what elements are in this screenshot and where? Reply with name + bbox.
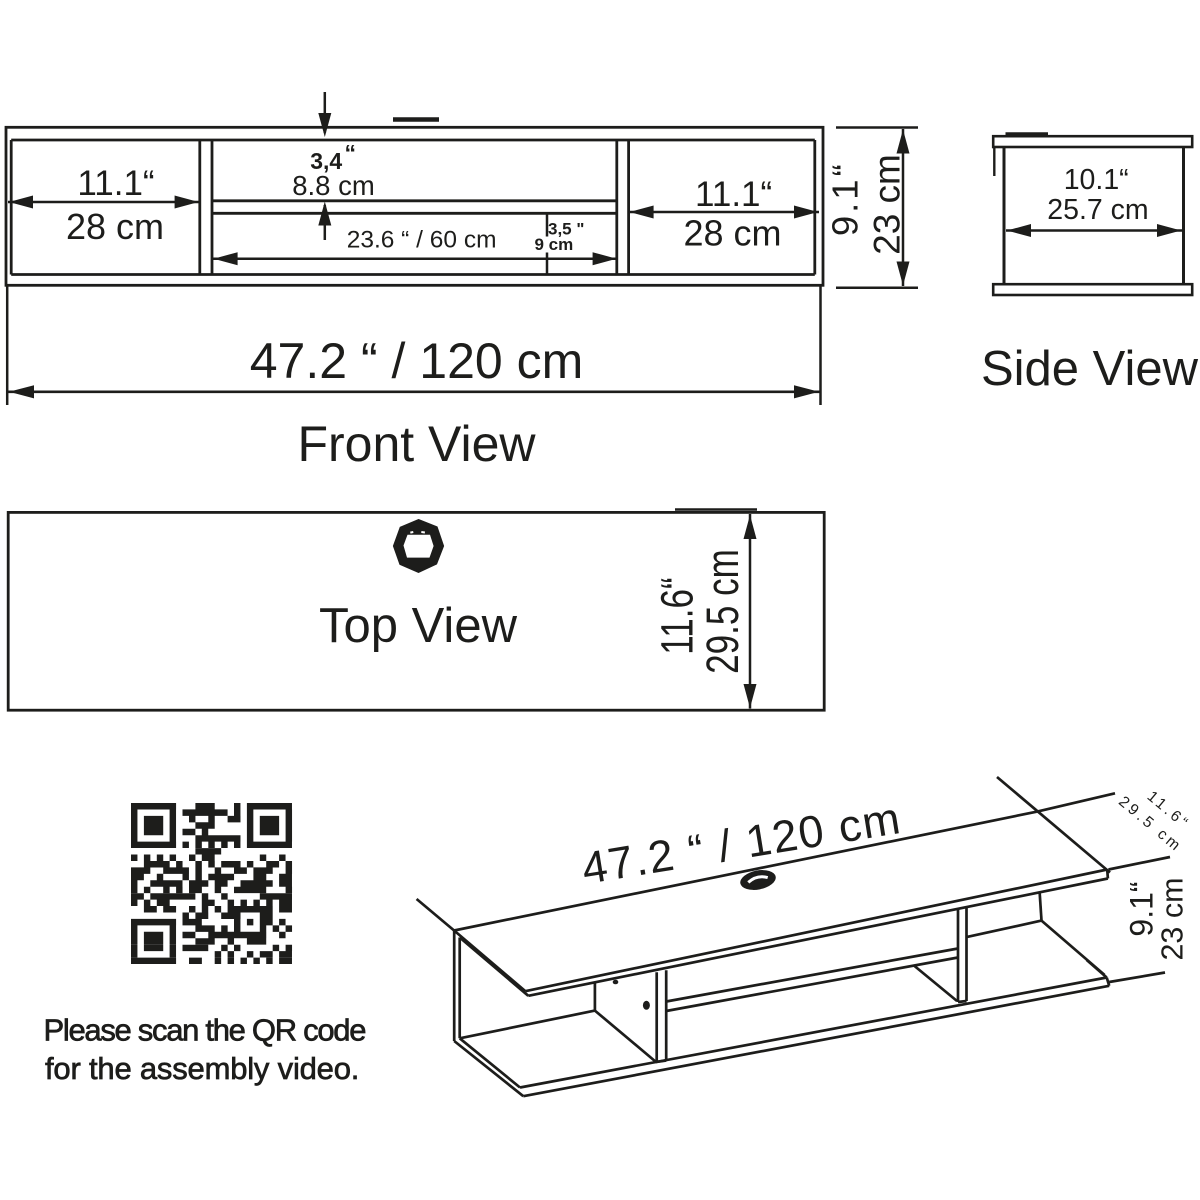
svg-text:11.6“: 11.6“ [651, 577, 702, 654]
svg-text:25.7 cm: 25.7 cm [1047, 194, 1148, 226]
svg-text:11.1“: 11.1“ [77, 164, 154, 203]
svg-text:28 cm: 28 cm [683, 213, 781, 254]
svg-text:28 cm: 28 cm [66, 206, 164, 247]
svg-text:47.2 “ / 120 cm: 47.2 “ / 120 cm [250, 333, 584, 389]
svg-text:9 cm: 9 cm [535, 235, 574, 254]
svg-text:Please scan the QR code: Please scan the QR code [44, 1013, 366, 1048]
svg-text:Front View: Front View [297, 416, 536, 472]
svg-text:for the assembly video.: for the assembly video. [45, 1051, 359, 1086]
svg-text:Top View: Top View [319, 599, 518, 653]
svg-text:8.8 cm: 8.8 cm [292, 170, 375, 201]
svg-text:11.1“: 11.1“ [695, 175, 772, 214]
svg-text:47.2 “ / 120 cm: 47.2 “ / 120 cm [578, 792, 905, 894]
svg-text:Side View: Side View [981, 342, 1199, 396]
svg-text:10.1“: 10.1“ [1064, 164, 1129, 196]
svg-text:23.6 “ / 60 cm: 23.6 “ / 60 cm [347, 227, 497, 254]
svg-text:9.1“: 9.1“ [1124, 881, 1160, 936]
svg-text:9.1“: 9.1“ [824, 161, 865, 236]
svg-text:23 cm: 23 cm [1156, 877, 1190, 960]
svg-text:29.5 cm: 29.5 cm [697, 549, 748, 674]
svg-text:“: “ [345, 140, 357, 166]
svg-text:23 cm: 23 cm [867, 154, 908, 255]
